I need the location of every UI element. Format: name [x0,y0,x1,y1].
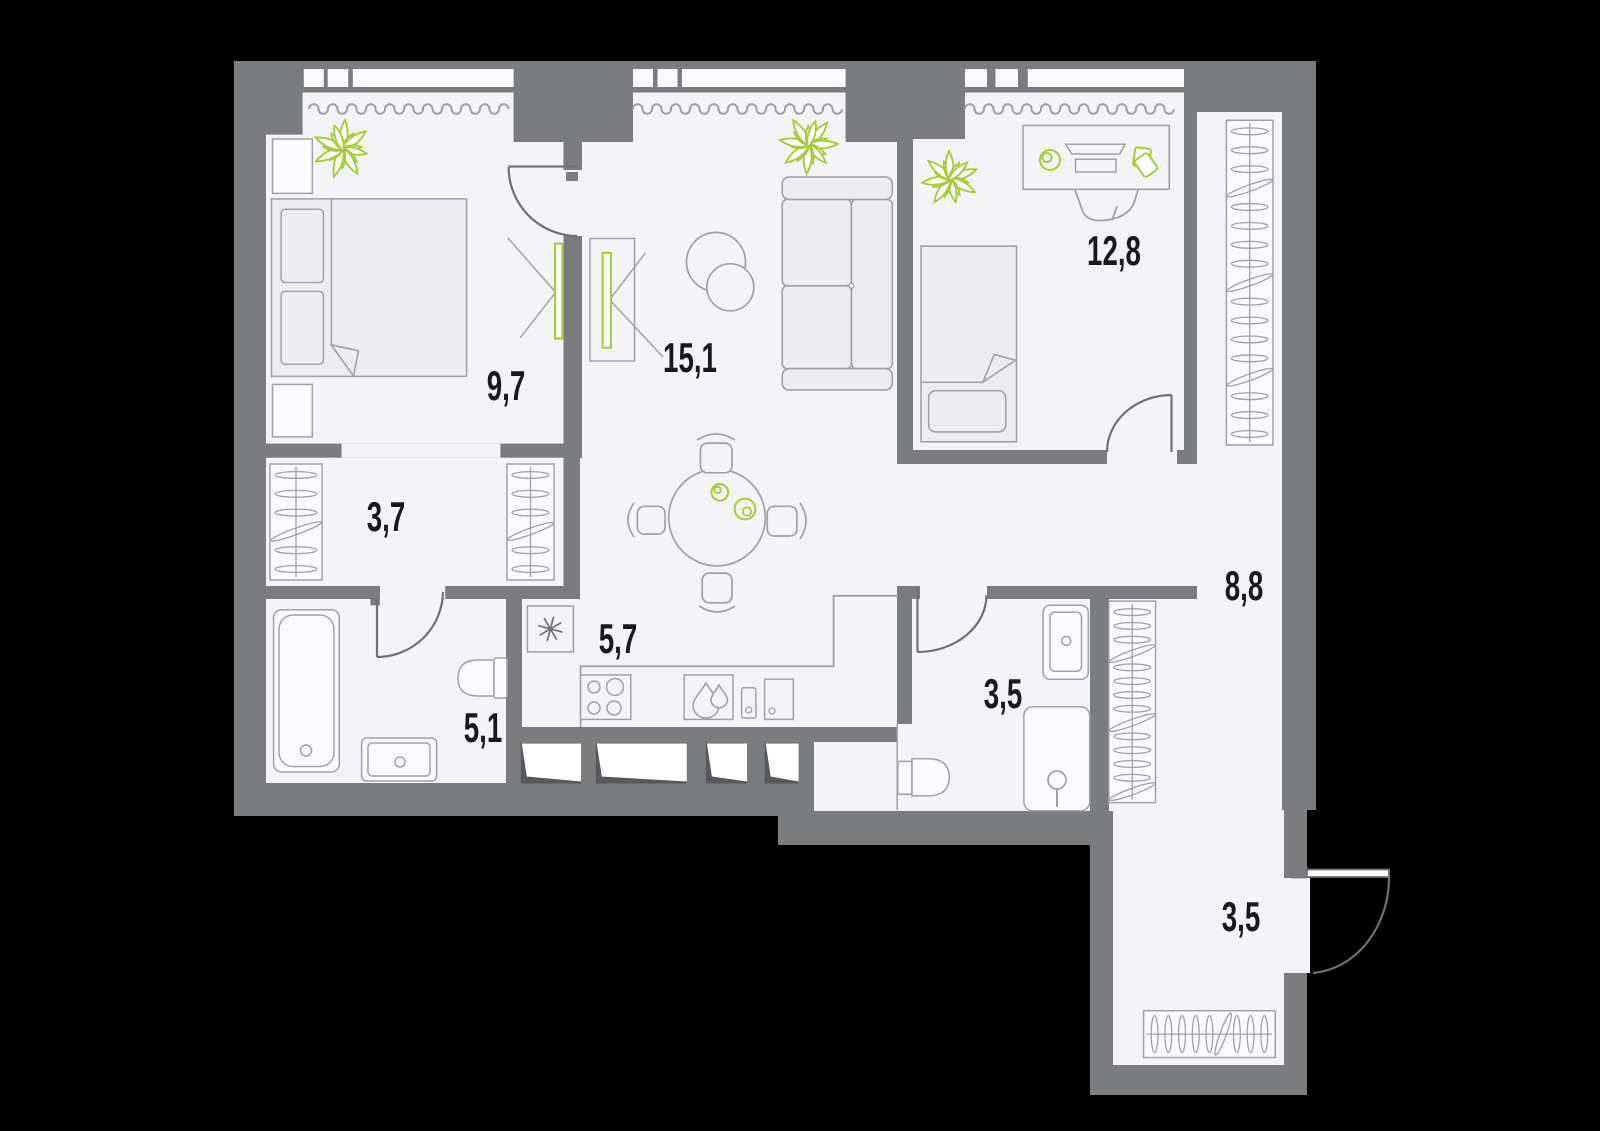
svg-text:5,7: 5,7 [599,615,638,662]
svg-text:9,7: 9,7 [487,362,526,409]
svg-text:3,5: 3,5 [984,670,1023,717]
svg-text:15,1: 15,1 [663,334,717,381]
svg-text:8,8: 8,8 [1225,562,1264,609]
svg-text:3,5: 3,5 [1222,893,1261,940]
svg-text:12,8: 12,8 [1087,227,1141,274]
svg-text:3,7: 3,7 [367,493,406,540]
svg-text:5,1: 5,1 [464,704,503,751]
